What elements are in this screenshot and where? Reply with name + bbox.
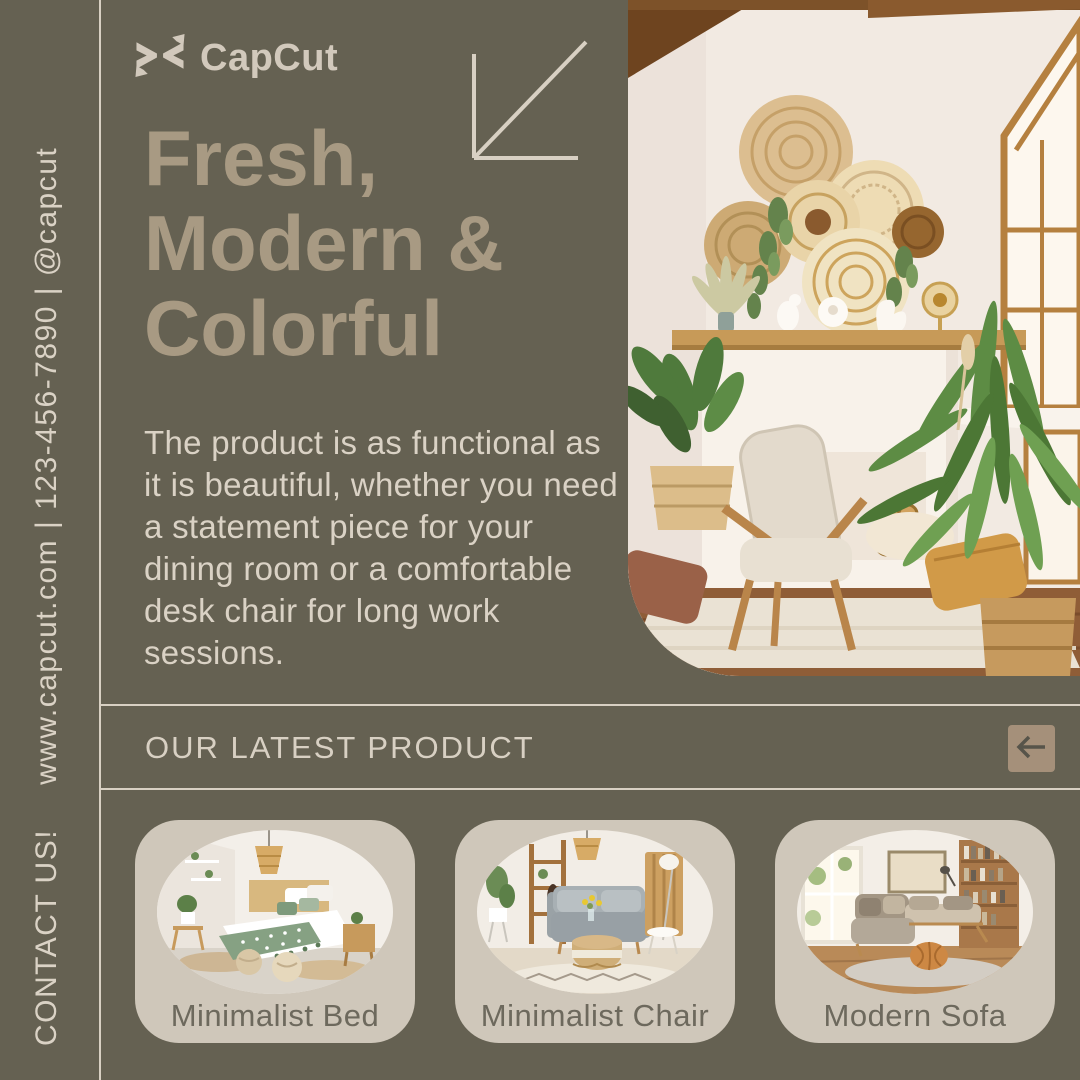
- product-card-minimalist-chair[interactable]: Minimalist Chair: [455, 820, 735, 1043]
- section-divider-top: [100, 704, 1080, 706]
- capcut-logo-icon: [133, 33, 187, 83]
- product-card-row: Minimalist Bed: [135, 820, 1055, 1043]
- flyer-canvas: CONTACT US! www.capcut.com | 123-456-789…: [0, 0, 1080, 1080]
- section-title: OUR LATEST PRODUCT: [145, 730, 535, 766]
- product-label: Minimalist Bed: [135, 998, 415, 1034]
- title-line-3: Colorful: [144, 286, 664, 371]
- product-label: Minimalist Chair: [455, 998, 735, 1034]
- back-arrow-button[interactable]: [1008, 725, 1055, 772]
- title-line-2: Modern &: [144, 201, 664, 286]
- sidebar-contact-strip: CONTACT US! www.capcut.com | 123-456-789…: [18, 0, 76, 1080]
- description-text: The product is as functional as it is be…: [144, 422, 622, 674]
- arrow-left-icon: [1016, 734, 1048, 763]
- page-title: Fresh, Modern & Colorful: [144, 116, 664, 371]
- contact-us-label: CONTACT US!: [30, 829, 64, 1046]
- product-card-modern-sofa[interactable]: Modern Sofa: [775, 820, 1055, 1043]
- contact-info-text: www.capcut.com | 123-456-7890 | @capcut: [30, 147, 64, 785]
- brand-logo: CapCut: [133, 33, 338, 83]
- section-divider-bottom: [100, 788, 1080, 790]
- product-label: Modern Sofa: [775, 998, 1055, 1034]
- sidebar-divider: [99, 0, 101, 1080]
- product-card-minimalist-bed[interactable]: Minimalist Bed: [135, 820, 415, 1043]
- title-line-1: Fresh,: [144, 116, 664, 201]
- hero-image: [628, 0, 1080, 676]
- brand-name: CapCut: [200, 37, 338, 80]
